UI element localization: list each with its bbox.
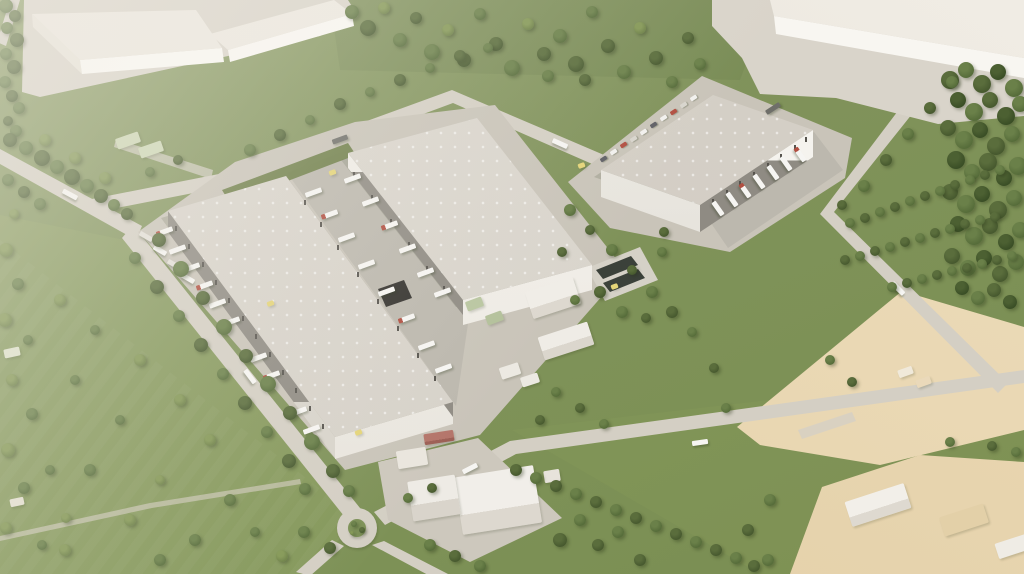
aerial-render-logistics-park [0, 0, 1024, 574]
atmospheric-haze [0, 0, 1024, 574]
